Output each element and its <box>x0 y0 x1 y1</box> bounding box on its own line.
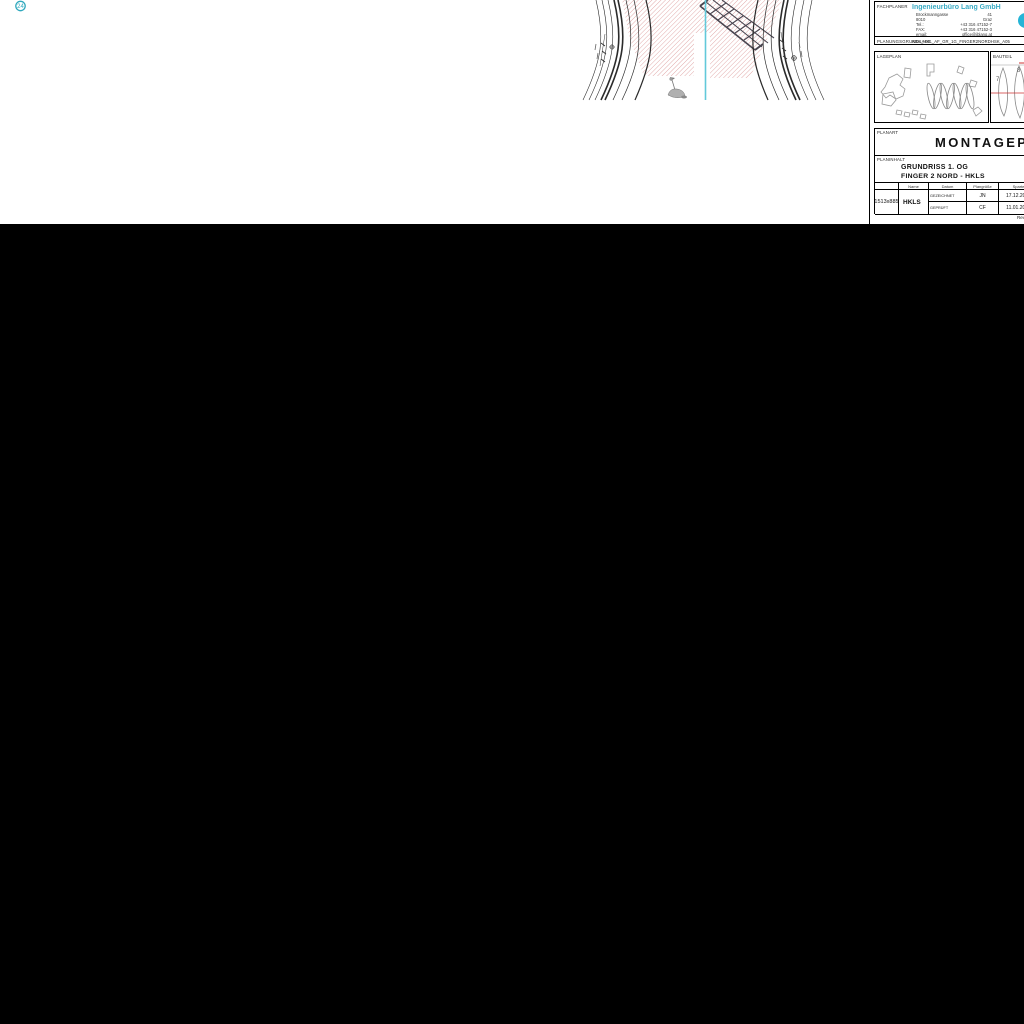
gezeichnet-name: JN <box>967 190 999 202</box>
dimension-marks-left <box>595 34 615 66</box>
plan-content-line2: FINGER 2 NORD - HKLS <box>901 173 985 180</box>
company-logo-icon <box>1018 13 1024 28</box>
table-header-name: Name <box>899 182 929 190</box>
viewer-canvas: 24 FACHPLANER Ingenieurbüro Lang GmbH Br… <box>0 0 1024 1024</box>
bauteil-sketch: 7 8 <box>991 60 1024 122</box>
approval-table: Name Datum Plangröße Sparte GEZEICHNET J… <box>875 182 1024 215</box>
row-label-gezeichnet: GEZEICHNET <box>929 190 967 202</box>
row-label-geprueft: GEPRÜFT <box>929 202 967 215</box>
fachplaner-box: FACHPLANER Ingenieurbüro Lang GmbH Brock… <box>874 1 1024 45</box>
gezeichnet-date: 17.12.2020 <box>999 190 1024 202</box>
trade-value: HKLS <box>899 190 929 215</box>
plan-content-line1: GRUNDRISS 1. OG <box>901 164 968 171</box>
plan-info-box: PLANART MONTAGEPLAN PLANINHALT GRUNDRISS… <box>874 128 1024 214</box>
geprueft-date: 11.01.2021 <box>999 202 1024 215</box>
fachplaner-label: FACHPLANER <box>877 4 908 9</box>
site-plan-sketch <box>875 60 988 122</box>
hatch-region <box>622 0 782 78</box>
title-block: FACHPLANER Ingenieurbüro Lang GmbH Brock… <box>874 0 1024 224</box>
table-header-empty <box>875 182 899 190</box>
geprueft-name: CF <box>967 202 999 215</box>
floor-plan-drawing: 24 <box>0 0 869 224</box>
table-header-date: Datum <box>929 182 967 190</box>
planinhalt-label: PLANINHALT <box>877 157 905 162</box>
company-name: Ingenieurbüro Lang GmbH <box>912 4 1001 11</box>
bauteil-label: BAUTEIL <box>993 54 1012 59</box>
planart-label: PLANART <box>877 130 898 135</box>
planinhalt-row: PLANINHALT GRUNDRISS 1. OG FINGER 2 NORD… <box>875 155 1024 183</box>
table-header-size: Plangröße <box>967 182 999 190</box>
plan-size-value: 1513x885 <box>875 190 899 215</box>
title-block-divider <box>869 0 870 224</box>
finger-buildings-band <box>925 83 975 110</box>
company-address: Brockmanngasse41 8010Graz Tel.:+43 316 4… <box>916 13 992 38</box>
lageplan-box: LAGEPLAN <box>874 51 989 123</box>
revision-note: Rev. <box>1017 215 1024 220</box>
table-header-trade: Sparte <box>999 182 1024 190</box>
annotation-marker[interactable]: 24 <box>16 1 25 10</box>
bauteil-box: BAUTEIL 7 8 <box>990 51 1024 123</box>
planungsgrundlage-row: PLANUNGSGRUNDLAGE KBH_HKL_AF_GR_1G_FINGE… <box>875 36 1024 46</box>
annotation-marker-label: 24 <box>17 4 24 10</box>
animal-symbol <box>668 77 687 99</box>
plan-type-title: MONTAGEPLAN <box>935 135 1024 150</box>
planungsgrundlage-value: KBH_HKL_AF_GR_1G_FINGER2NORDHSK_A05 <box>912 39 1010 44</box>
lageplan-label: LAGEPLAN <box>877 54 901 59</box>
